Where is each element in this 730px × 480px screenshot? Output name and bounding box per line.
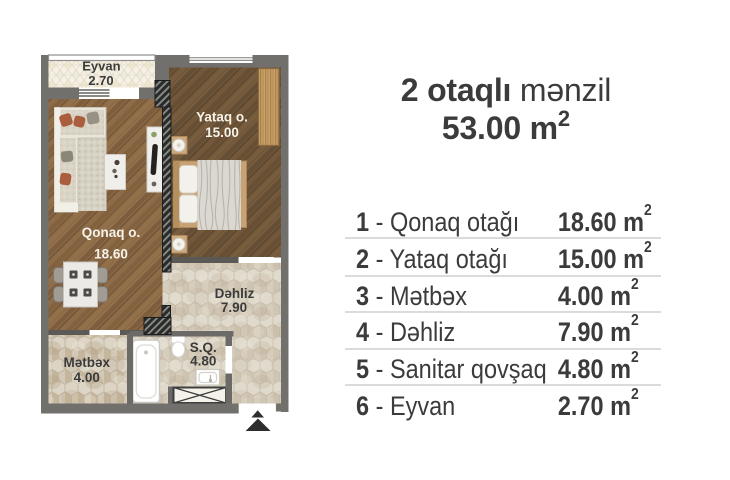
svg-text:2.70: 2.70 — [88, 73, 113, 88]
svg-text:Dəhliz: Dəhliz — [215, 286, 255, 301]
svg-text:Yataq o.: Yataq o. — [196, 110, 248, 125]
svg-text:4.00: 4.00 — [74, 370, 100, 385]
svg-text:Qonaq o.: Qonaq o. — [82, 225, 141, 240]
svg-text:4.80: 4.80 — [190, 354, 216, 369]
svg-text:Eyvan: Eyvan — [82, 59, 120, 74]
svg-text:15.00: 15.00 — [205, 125, 239, 140]
svg-text:Mətbəx: Mətbəx — [64, 355, 111, 370]
svg-text:7.90: 7.90 — [221, 300, 247, 315]
svg-text:18.60: 18.60 — [94, 247, 128, 262]
